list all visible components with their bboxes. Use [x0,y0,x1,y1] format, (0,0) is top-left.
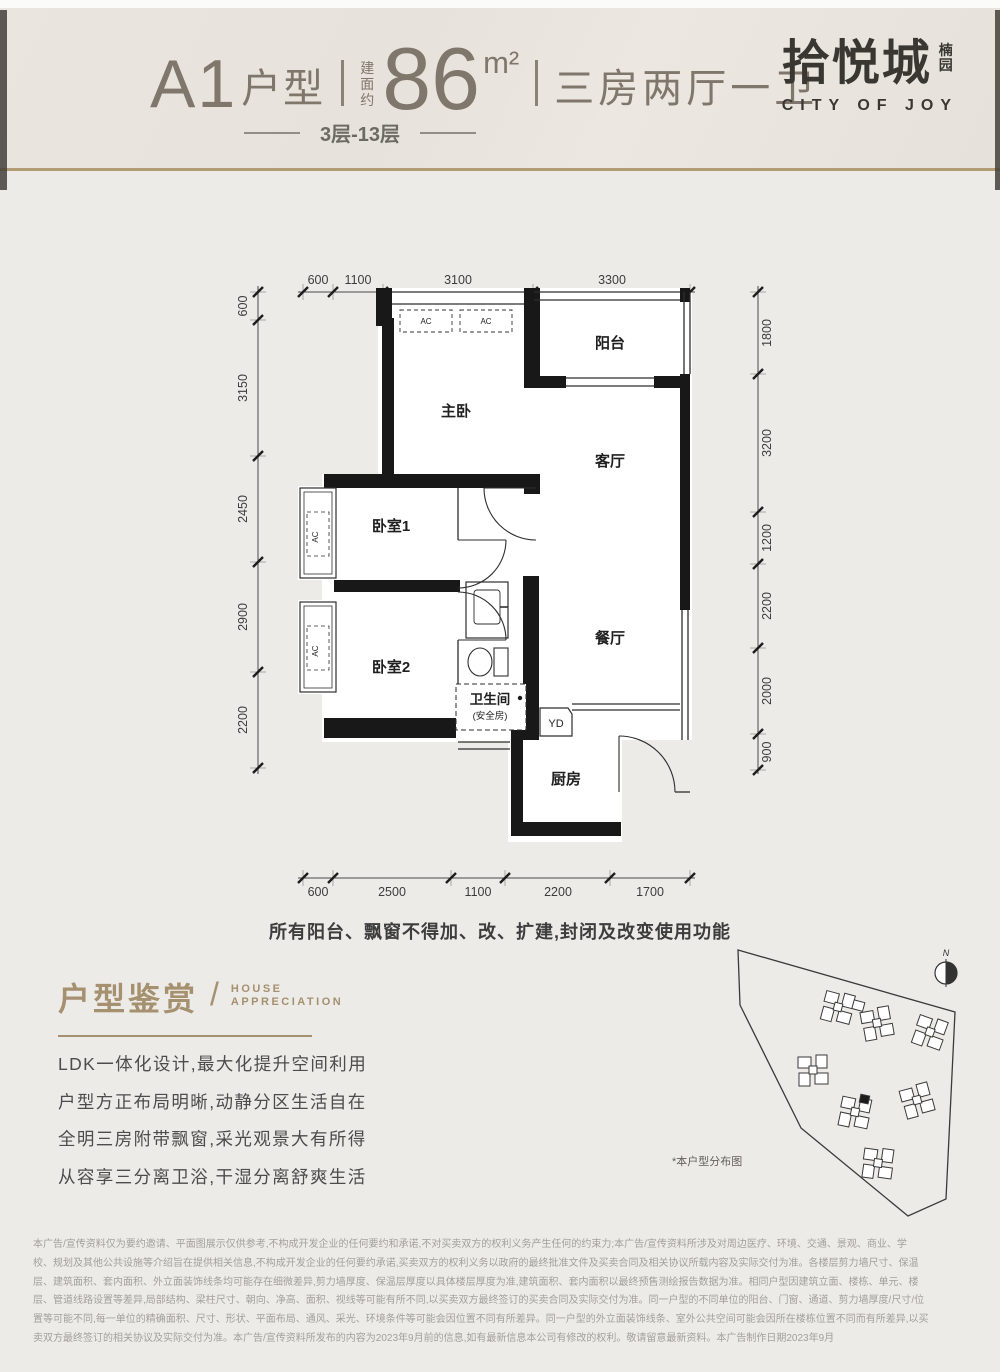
appreciation-en1: HOUSE [231,983,283,995]
dim-top-3300: 3300 [598,273,626,287]
top-strip [0,0,1000,8]
dim-left-600: 600 [236,296,250,317]
area-unit: m² [483,47,519,114]
dim-left-3150: 3150 [236,374,250,402]
dim-top-1100: 1100 [345,273,372,287]
room-label-bath: 卫生间 [470,691,511,707]
flyer-page: A1 户型 建面约 86 m² 三房两厅一卫 3层-13层 拾悦城 楠园 CIT… [0,0,1000,1372]
ac-label-top2: AC [480,317,491,326]
dim-right-1200: 1200 [760,524,774,552]
unit-marker [859,1094,869,1104]
building [798,1055,828,1086]
disclaimer-line: 校、规划及其他公共设施等介绍旨在提供相关信息,不构成开发企业的任何要约承诺,买卖… [33,1255,969,1274]
brand-name-en: CITY OF JOY [782,97,958,115]
room-label-kitchen: 厨房 [551,770,581,788]
area-prefix: 建面约 [360,60,377,114]
floor-plan: 600 1100 3100 3300 600 2500 1100 2200 17… [228,228,788,908]
appreciation-title: 户型鉴赏 [58,974,198,1020]
appreciation-section: 户型鉴赏 / HOUSE APPRECIATION [58,974,343,1037]
brand-name-cn: 拾悦城 [782,40,932,88]
room-label-dining: 餐厅 [595,629,625,647]
building [819,989,856,1027]
room-label-bath-note: (安全房) [473,710,508,722]
area-value: 86 [382,44,480,114]
site-caption: *本户型分布图 [672,1153,742,1169]
room-label-bed1: 卧室1 [372,517,410,535]
divider-bar [341,60,344,106]
room-underlay [298,288,692,842]
dim-right-1800: 1800 [760,319,774,347]
dim-bottom-1100: 1100 [465,885,492,899]
disclaimer-line: 层、管道线路设置等差异,局部结构、梁柱尺寸、朝向、净高、面积、视线等可能有所不同… [33,1292,969,1311]
feature-copy: LDK一体化设计,最大化提升空间利用 户型方正布局明晰,动静分区生活自在 全明三… [58,1046,367,1196]
appreciation-underline [58,1035,312,1037]
disclaimer-line: 卖双方最终签订的相关协议及实际交付为准。本广告/宣传资料所发布的内容为2023年… [33,1330,969,1349]
yd-label: YD [548,718,563,730]
room-label-living: 客厅 [594,452,625,470]
unit-code: A1 [150,55,237,115]
divider-bar [535,60,538,106]
appreciation-subtitle: HOUSE APPRECIATION [231,974,343,1009]
ac-label-bay1: AC [311,531,320,542]
dim-right-900: 900 [760,742,774,763]
site-map: N [725,935,970,1225]
dim-left-2200: 2200 [236,706,250,734]
dim-right-2000: 2000 [760,677,774,705]
dim-right-3200: 3200 [760,429,774,457]
brand-logo: 拾悦城 楠园 CITY OF JOY [782,40,958,115]
building [861,1146,895,1181]
floors-row: 3层-13层 [0,118,720,147]
dim-right-2200: 2200 [760,592,774,620]
building [910,1013,949,1052]
unit-title: A1 户型 建面约 86 m² 三房两厅一卫 [150,44,818,114]
dim-left-2900: 2900 [236,603,250,631]
dim-left-2450: 2450 [236,495,250,523]
dim-top-3100: 3100 [444,273,472,287]
brand-seal: 楠园 [939,40,955,73]
dim-bottom-600: 600 [308,885,329,899]
photo-edge-left [0,10,7,190]
room-label-bed2: 卧室2 [372,658,410,676]
feature-line-3: 全明三房附带飘窗,采光观景大有所得 [58,1121,367,1159]
floors-label: 3层-13层 [320,118,400,147]
appreciation-en2: APPRECIATION [231,996,343,1008]
slash-divider: / [210,974,219,1013]
feature-line-2: 户型方正布局明晰,动静分区生活自在 [58,1084,367,1122]
feature-line-4: 从容享三分离卫浴,干湿分离舒爽生活 [58,1159,367,1197]
dim-top-600: 600 [308,273,329,287]
room-label-balcony: 阳台 [595,334,625,352]
feature-line-1: LDK一体化设计,最大化提升空间利用 [58,1046,367,1084]
disclaimer: 本广告/宣传资料仅为要约邀请、平面图展示仅供参考,不构成开发企业的任何要约和承诺… [33,1236,969,1349]
compass-icon: N [935,948,957,987]
dim-bottom-2200: 2200 [544,885,572,899]
photo-edge-right [995,10,1000,190]
unit-word: 户型 [237,69,325,114]
ac-label-top1: AC [420,317,431,326]
disclaimer-line: 本广告/宣传资料仅为要约邀请、平面图展示仅供参考,不构成开发企业的任何要约和承诺… [33,1236,969,1255]
dim-bottom-2500: 2500 [378,885,406,899]
ac-label-bay2: AC [311,645,320,656]
room-label-master: 主卧 [441,402,471,420]
compass-north-label: N [943,948,950,958]
disclaimer-line: 置等可能不同,每一单位的精确面积、尺寸、形状、平面布局、通风、采光、环境条件等可… [33,1311,969,1330]
disclaimer-line: 层、建筑面积、套内面积、外立面装饰线条均可能存在细微差异,剪力墙厚度、保温层厚度… [33,1274,969,1293]
dash-right [420,132,476,134]
dim-bottom-1700: 1700 [636,885,664,899]
building [899,1082,936,1120]
building [860,1006,895,1042]
dash-left [244,132,300,134]
layout-text: 三房两厅一卫 [554,69,818,114]
yd-box: YD [540,708,572,736]
site-buildings [798,989,949,1181]
